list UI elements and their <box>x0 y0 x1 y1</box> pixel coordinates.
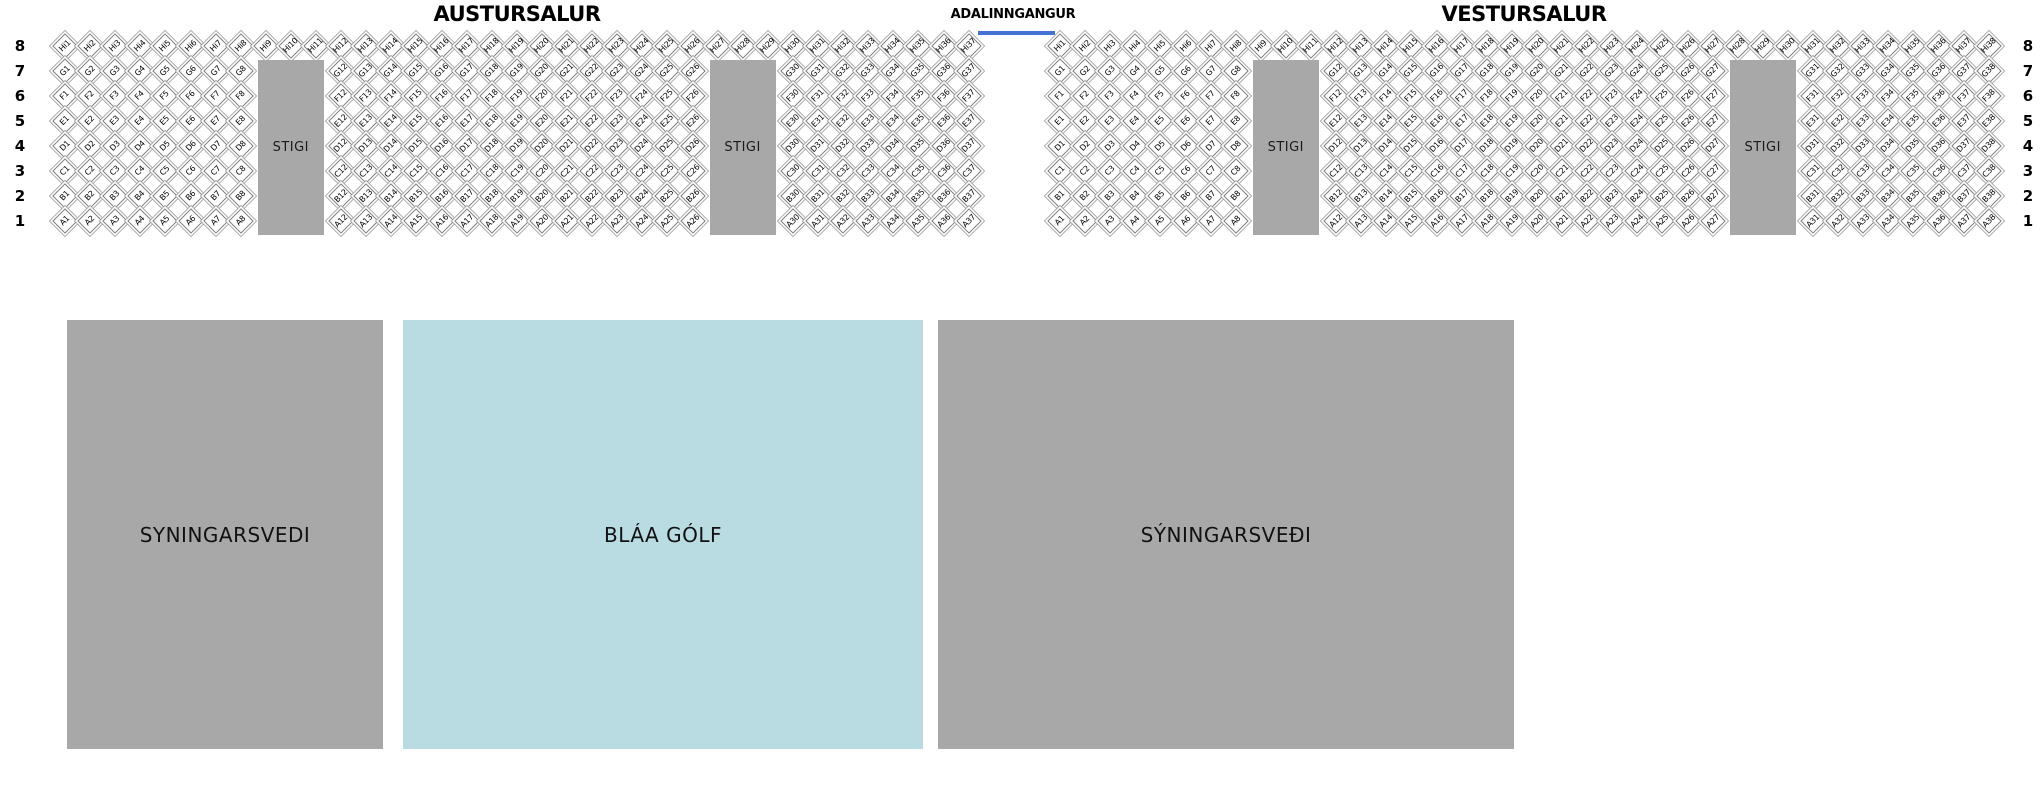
seat[interactable]: B15 <box>1399 183 1424 208</box>
seat[interactable]: Hi35 <box>1901 33 1926 58</box>
seat[interactable]: D14 <box>1374 133 1399 158</box>
seat-label: A27 <box>1705 213 1721 229</box>
seat[interactable]: G36 <box>1926 58 1951 83</box>
seat[interactable]: B25 <box>1650 183 1675 208</box>
seat[interactable]: A17 <box>1449 208 1474 233</box>
seat[interactable]: D25 <box>1650 133 1675 158</box>
seat[interactable]: B3 <box>1097 183 1122 208</box>
seat[interactable]: B19 <box>1499 183 1524 208</box>
seat[interactable]: D21 <box>1549 133 1574 158</box>
seat[interactable]: Hi5 <box>1148 33 1173 58</box>
seat[interactable]: D27 <box>1700 133 1725 158</box>
seat-label: D16 <box>1428 138 1445 155</box>
seat[interactable]: G24 <box>1625 58 1650 83</box>
seat[interactable]: C2 <box>1072 158 1097 183</box>
seat[interactable]: E31 <box>1800 108 1825 133</box>
seat[interactable]: C1 <box>1047 158 1072 183</box>
seat[interactable]: E12 <box>1323 108 1348 133</box>
seat[interactable]: G13 <box>1348 58 1373 83</box>
seat[interactable]: C22 <box>1574 158 1599 183</box>
seat[interactable]: B12 <box>1323 183 1348 208</box>
seat[interactable]: A5 <box>1148 208 1173 233</box>
seat-label: G32 <box>1830 63 1847 80</box>
seat[interactable]: G23 <box>1599 58 1624 83</box>
seat[interactable]: D18 <box>1474 133 1499 158</box>
seat[interactable]: C8 <box>1223 158 1248 183</box>
seat[interactable]: Hi9 <box>1248 33 1273 58</box>
seat[interactable]: F19 <box>1499 83 1524 108</box>
seat[interactable]: C23 <box>1599 158 1624 183</box>
seat[interactable]: G18 <box>1474 58 1499 83</box>
seat-label: F5 <box>1154 90 1166 102</box>
seat[interactable]: F18 <box>1474 83 1499 108</box>
seat[interactable]: E27 <box>1700 108 1725 133</box>
seat[interactable]: A37 <box>1951 208 1976 233</box>
seat[interactable]: Hi26 <box>1675 33 1700 58</box>
seat[interactable]: F16 <box>1424 83 1449 108</box>
seat[interactable]: Hi16 <box>1424 33 1449 58</box>
seat[interactable]: E1 <box>1047 108 1072 133</box>
seat[interactable]: A23 <box>1599 208 1624 233</box>
seat[interactable]: D23 <box>1599 133 1624 158</box>
seat[interactable]: G22 <box>1574 58 1599 83</box>
seat-label: E7 <box>1204 115 1216 127</box>
seat[interactable]: D6 <box>1173 133 1198 158</box>
seat[interactable]: F3 <box>1097 83 1122 108</box>
seat[interactable]: F6 <box>1173 83 1198 108</box>
seat[interactable]: C31 <box>1800 158 1825 183</box>
seat[interactable]: D35 <box>1901 133 1926 158</box>
seat[interactable]: D3 <box>1097 133 1122 158</box>
seat[interactable]: Hi15 <box>1399 33 1424 58</box>
seat[interactable]: F12 <box>1323 83 1348 108</box>
seat[interactable]: A13 <box>1348 208 1373 233</box>
seat[interactable]: G17 <box>1449 58 1474 83</box>
seat[interactable]: G33 <box>1850 58 1875 83</box>
seat[interactable]: B18 <box>1474 183 1499 208</box>
seat[interactable]: C34 <box>1876 158 1901 183</box>
seat[interactable]: F31 <box>1800 83 1825 108</box>
seat[interactable]: Hi31 <box>1800 33 1825 58</box>
seat[interactable]: B31 <box>1800 183 1825 208</box>
seat[interactable]: E3 <box>1097 108 1122 133</box>
seat[interactable]: A1 <box>1047 208 1072 233</box>
seat[interactable]: Hi36 <box>1926 33 1951 58</box>
seat[interactable]: E17 <box>1449 108 1474 133</box>
seat[interactable]: C37 <box>1951 158 1976 183</box>
seat[interactable]: B34 <box>1876 183 1901 208</box>
seat[interactable]: A2 <box>1072 208 1097 233</box>
seat[interactable]: B5 <box>1148 183 1173 208</box>
seat[interactable]: B38 <box>1976 183 2001 208</box>
seat[interactable]: C6 <box>1173 158 1198 183</box>
seat[interactable]: Hi3 <box>1097 33 1122 58</box>
seat[interactable]: Hi27 <box>1700 33 1725 58</box>
seat[interactable]: A24 <box>1625 208 1650 233</box>
seat[interactable]: C27 <box>1700 158 1725 183</box>
seat[interactable]: A34 <box>1876 208 1901 233</box>
seat[interactable]: D22 <box>1574 133 1599 158</box>
seat[interactable]: E32 <box>1825 108 1850 133</box>
seat[interactable]: F17 <box>1449 83 1474 108</box>
seat[interactable]: A18 <box>1474 208 1499 233</box>
seat[interactable]: C18 <box>1474 158 1499 183</box>
seat[interactable]: E15 <box>1399 108 1424 133</box>
seat[interactable]: Hi21 <box>1549 33 1574 58</box>
seat-label: G5 <box>1154 64 1167 77</box>
seat[interactable]: G21 <box>1549 58 1574 83</box>
seat[interactable]: E38 <box>1976 108 2001 133</box>
seat[interactable]: Hi10 <box>1273 33 1298 58</box>
seat[interactable]: Hi13 <box>1348 33 1373 58</box>
seat[interactable]: A36 <box>1926 208 1951 233</box>
seat[interactable]: F36 <box>1926 83 1951 108</box>
seat[interactable]: F25 <box>1650 83 1675 108</box>
seat[interactable]: G31 <box>1800 58 1825 83</box>
seat[interactable]: G3 <box>1097 58 1122 83</box>
seat[interactable]: B37 <box>1951 183 1976 208</box>
seat[interactable]: B32 <box>1825 183 1850 208</box>
seat[interactable]: F37 <box>1951 83 1976 108</box>
seat-label: D36 <box>1930 138 1947 155</box>
seat[interactable]: D17 <box>1449 133 1474 158</box>
seat[interactable]: F20 <box>1524 83 1549 108</box>
seat[interactable]: G34 <box>1876 58 1901 83</box>
seat[interactable]: A32 <box>1825 208 1850 233</box>
seat[interactable]: A22 <box>1574 208 1599 233</box>
seat-label: Hi26 <box>1679 37 1697 55</box>
seat[interactable]: Hi19 <box>1499 33 1524 58</box>
seat[interactable]: A21 <box>1549 208 1574 233</box>
seat-label: C36 <box>1930 163 1946 179</box>
seat[interactable]: E36 <box>1926 108 1951 133</box>
seat[interactable]: C20 <box>1524 158 1549 183</box>
seat[interactable]: A26 <box>1675 208 1700 233</box>
seat[interactable]: Hi22 <box>1574 33 1599 58</box>
seat[interactable]: C38 <box>1976 158 2001 183</box>
seat[interactable]: E24 <box>1625 108 1650 133</box>
seat[interactable]: Hi38 <box>1976 33 2001 58</box>
seat[interactable]: A3 <box>1097 208 1122 233</box>
seat[interactable]: G4 <box>1123 58 1148 83</box>
seat[interactable]: D19 <box>1499 133 1524 158</box>
seat[interactable]: A20 <box>1524 208 1549 233</box>
seat[interactable]: E14 <box>1374 108 1399 133</box>
seat[interactable]: A33 <box>1850 208 1875 233</box>
seat[interactable]: E22 <box>1574 108 1599 133</box>
seat[interactable]: E8 <box>1223 108 1248 133</box>
seat[interactable]: D2 <box>1072 133 1097 158</box>
seat-label: D27 <box>1704 138 1721 155</box>
seat[interactable]: D31 <box>1800 133 1825 158</box>
seat[interactable]: Hi30 <box>1775 33 1800 58</box>
seat[interactable]: D24 <box>1625 133 1650 158</box>
seat-label: B21 <box>1554 188 1570 204</box>
seat-label: C26 <box>1679 163 1695 179</box>
seat[interactable]: A31 <box>1800 208 1825 233</box>
seat[interactable]: B4 <box>1123 183 1148 208</box>
seat-label: C7 <box>1204 165 1217 178</box>
seat-label: B36 <box>1930 188 1946 204</box>
seat[interactable]: B13 <box>1348 183 1373 208</box>
seat-label: G12 <box>1328 63 1345 80</box>
seat[interactable]: A14 <box>1374 208 1399 233</box>
seat[interactable]: B26 <box>1675 183 1700 208</box>
seat[interactable]: Hi18 <box>1474 33 1499 58</box>
seat[interactable]: B2 <box>1072 183 1097 208</box>
seat[interactable]: C16 <box>1424 158 1449 183</box>
seat[interactable]: E16 <box>1424 108 1449 133</box>
seat[interactable]: A19 <box>1499 208 1524 233</box>
seat[interactable]: G15 <box>1399 58 1424 83</box>
seat-label: F27 <box>1705 88 1720 103</box>
seat[interactable]: E20 <box>1524 108 1549 133</box>
seat-label: G4 <box>1129 64 1142 77</box>
seat[interactable]: G35 <box>1901 58 1926 83</box>
seat-label: G15 <box>1403 63 1420 80</box>
seat[interactable]: E6 <box>1173 108 1198 133</box>
seat[interactable]: C4 <box>1123 158 1148 183</box>
seat[interactable]: B7 <box>1198 183 1223 208</box>
seat[interactable]: Hi37 <box>1951 33 1976 58</box>
seat-label: C35 <box>1905 163 1921 179</box>
seat[interactable]: Hi28 <box>1725 33 1750 58</box>
seat[interactable]: A25 <box>1650 208 1675 233</box>
seat[interactable]: D36 <box>1926 133 1951 158</box>
seat[interactable]: Hi14 <box>1374 33 1399 58</box>
seat[interactable]: A4 <box>1123 208 1148 233</box>
seat[interactable]: Hi33 <box>1850 33 1875 58</box>
seat[interactable]: B22 <box>1574 183 1599 208</box>
seat[interactable]: D16 <box>1424 133 1449 158</box>
seat[interactable]: F33 <box>1850 83 1875 108</box>
seat[interactable]: D32 <box>1825 133 1850 158</box>
seat[interactable]: G5 <box>1148 58 1173 83</box>
seat[interactable]: E37 <box>1951 108 1976 133</box>
seat[interactable]: F38 <box>1976 83 2001 108</box>
seat[interactable]: C14 <box>1374 158 1399 183</box>
seat[interactable]: F7 <box>1198 83 1223 108</box>
seat[interactable]: B17 <box>1449 183 1474 208</box>
seat[interactable]: E19 <box>1499 108 1524 133</box>
seat[interactable]: C26 <box>1675 158 1700 183</box>
seat[interactable]: A6 <box>1173 208 1198 233</box>
seat[interactable]: G19 <box>1499 58 1524 83</box>
seat[interactable]: G20 <box>1524 58 1549 83</box>
seat-label: Hi20 <box>1528 37 1546 55</box>
seat[interactable]: B6 <box>1173 183 1198 208</box>
seat[interactable]: C19 <box>1499 158 1524 183</box>
seat[interactable]: F14 <box>1374 83 1399 108</box>
seat[interactable]: F8 <box>1223 83 1248 108</box>
seat[interactable]: C12 <box>1323 158 1348 183</box>
seat[interactable]: Hi25 <box>1650 33 1675 58</box>
seat[interactable]: C17 <box>1449 158 1474 183</box>
seat-label: G25 <box>1654 63 1671 80</box>
seat[interactable]: B20 <box>1524 183 1549 208</box>
seat[interactable]: E13 <box>1348 108 1373 133</box>
seat[interactable]: G7 <box>1198 58 1223 83</box>
seat[interactable]: E23 <box>1599 108 1624 133</box>
seat[interactable]: B16 <box>1424 183 1449 208</box>
seat[interactable]: Hi4 <box>1123 33 1148 58</box>
seat[interactable]: D20 <box>1524 133 1549 158</box>
floor-area-blaa-golf[interactable]: BLÁA GÓLF <box>403 320 923 749</box>
seat[interactable]: G25 <box>1650 58 1675 83</box>
seat[interactable]: D26 <box>1675 133 1700 158</box>
seat-label: C31 <box>1805 163 1821 179</box>
seat[interactable]: D12 <box>1323 133 1348 158</box>
seat[interactable]: E21 <box>1549 108 1574 133</box>
seat[interactable]: B35 <box>1901 183 1926 208</box>
seat[interactable]: F27 <box>1700 83 1725 108</box>
seat[interactable]: D37 <box>1951 133 1976 158</box>
seat[interactable]: A38 <box>1976 208 2001 233</box>
seat[interactable]: A15 <box>1399 208 1424 233</box>
seat[interactable]: C3 <box>1097 158 1122 183</box>
seat[interactable]: Hi20 <box>1524 33 1549 58</box>
seat[interactable]: C32 <box>1825 158 1850 183</box>
seat[interactable]: B33 <box>1850 183 1875 208</box>
seat[interactable]: E35 <box>1901 108 1926 133</box>
seat-label: D13 <box>1353 138 1370 155</box>
seat-label: A31 <box>1805 213 1821 229</box>
seat[interactable]: C35 <box>1901 158 1926 183</box>
seat[interactable]: F35 <box>1901 83 1926 108</box>
seat[interactable]: G14 <box>1374 58 1399 83</box>
seat[interactable]: Hi23 <box>1599 33 1624 58</box>
seat[interactable]: C36 <box>1926 158 1951 183</box>
seat[interactable]: G8 <box>1223 58 1248 83</box>
seat[interactable]: E18 <box>1474 108 1499 133</box>
seat[interactable]: B1 <box>1047 183 1072 208</box>
seat-label: C6 <box>1179 165 1192 178</box>
seat[interactable]: C7 <box>1198 158 1223 183</box>
seat[interactable]: B36 <box>1926 183 1951 208</box>
seat[interactable]: D15 <box>1399 133 1424 158</box>
seat[interactable]: D5 <box>1148 133 1173 158</box>
seat-label: B20 <box>1529 188 1545 204</box>
seat[interactable]: Hi1 <box>1047 33 1072 58</box>
seat-label: D24 <box>1629 138 1646 155</box>
seat[interactable]: F21 <box>1549 83 1574 108</box>
seat[interactable]: E34 <box>1876 108 1901 133</box>
seat-label: A5 <box>1154 215 1167 228</box>
seat[interactable]: E25 <box>1650 108 1675 133</box>
seat[interactable]: Hi8 <box>1223 33 1248 58</box>
seat[interactable]: B8 <box>1223 183 1248 208</box>
seat[interactable]: A16 <box>1424 208 1449 233</box>
seat[interactable]: A8 <box>1223 208 1248 233</box>
seat[interactable]: A12 <box>1323 208 1348 233</box>
seat[interactable]: A27 <box>1700 208 1725 233</box>
seat[interactable]: E7 <box>1198 108 1223 133</box>
seat[interactable]: B21 <box>1549 183 1574 208</box>
seat[interactable]: E33 <box>1850 108 1875 133</box>
seat[interactable]: G2 <box>1072 58 1097 83</box>
seat[interactable]: D13 <box>1348 133 1373 158</box>
seat[interactable]: G26 <box>1675 58 1700 83</box>
seat[interactable]: Hi24 <box>1625 33 1650 58</box>
seat[interactable]: D33 <box>1850 133 1875 158</box>
seat[interactable]: D4 <box>1123 133 1148 158</box>
seat[interactable]: Hi17 <box>1449 33 1474 58</box>
seat[interactable]: G16 <box>1424 58 1449 83</box>
row-number-label: 4 <box>2023 137 2033 155</box>
seat[interactable]: D38 <box>1976 133 2001 158</box>
seat[interactable]: Hi34 <box>1876 33 1901 58</box>
seat[interactable]: F1 <box>1047 83 1072 108</box>
seat[interactable]: B27 <box>1700 183 1725 208</box>
seat[interactable]: F13 <box>1348 83 1373 108</box>
seat[interactable]: B23 <box>1599 183 1624 208</box>
seat[interactable]: F26 <box>1675 83 1700 108</box>
seat[interactable]: E4 <box>1123 108 1148 133</box>
seat-label: Hi31 <box>1804 37 1822 55</box>
seat[interactable]: E2 <box>1072 108 1097 133</box>
seat[interactable]: D8 <box>1223 133 1248 158</box>
seat[interactable]: D7 <box>1198 133 1223 158</box>
seat[interactable]: F23 <box>1599 83 1624 108</box>
seat[interactable]: G37 <box>1951 58 1976 83</box>
seat[interactable]: G27 <box>1700 58 1725 83</box>
seat[interactable]: G1 <box>1047 58 1072 83</box>
seat[interactable]: A7 <box>1198 208 1223 233</box>
seat[interactable]: B14 <box>1374 183 1399 208</box>
seat[interactable]: A35 <box>1901 208 1926 233</box>
seat[interactable]: F32 <box>1825 83 1850 108</box>
seat[interactable]: C15 <box>1399 158 1424 183</box>
seat[interactable]: Hi7 <box>1198 33 1223 58</box>
seat[interactable]: C33 <box>1850 158 1875 183</box>
seat[interactable]: B24 <box>1625 183 1650 208</box>
seat[interactable]: E5 <box>1148 108 1173 133</box>
seat-label: A34 <box>1880 213 1896 229</box>
seat[interactable]: Hi12 <box>1323 33 1348 58</box>
seat[interactable]: C13 <box>1348 158 1373 183</box>
seat[interactable]: Hi6 <box>1173 33 1198 58</box>
seat[interactable]: E26 <box>1675 108 1700 133</box>
seat-label: B18 <box>1479 188 1495 204</box>
seat[interactable]: G6 <box>1173 58 1198 83</box>
seat[interactable]: F24 <box>1625 83 1650 108</box>
seat[interactable]: G32 <box>1825 58 1850 83</box>
seat[interactable]: D1 <box>1047 133 1072 158</box>
seat[interactable]: C5 <box>1148 158 1173 183</box>
row-number-label: 7 <box>2023 62 2033 80</box>
seat[interactable]: Hi11 <box>1298 33 1323 58</box>
seat[interactable]: G38 <box>1976 58 2001 83</box>
seat[interactable]: C25 <box>1650 158 1675 183</box>
seat-label: A12 <box>1328 213 1344 229</box>
seat[interactable]: F2 <box>1072 83 1097 108</box>
seat[interactable]: F5 <box>1148 83 1173 108</box>
seat[interactable]: F4 <box>1123 83 1148 108</box>
row-number-label: 1 <box>2023 212 2033 230</box>
seat[interactable]: Hi2 <box>1072 33 1097 58</box>
seat[interactable]: C24 <box>1625 158 1650 183</box>
seat[interactable]: F34 <box>1876 83 1901 108</box>
seat[interactable]: F22 <box>1574 83 1599 108</box>
seat-label: A20 <box>1529 213 1545 229</box>
seat[interactable]: D34 <box>1876 133 1901 158</box>
seat[interactable]: C21 <box>1549 158 1574 183</box>
seat[interactable]: Hi29 <box>1750 33 1775 58</box>
seat[interactable]: Hi32 <box>1825 33 1850 58</box>
seat[interactable]: F15 <box>1399 83 1424 108</box>
seat[interactable]: G12 <box>1323 58 1348 83</box>
seat-label: F8 <box>1230 90 1242 102</box>
